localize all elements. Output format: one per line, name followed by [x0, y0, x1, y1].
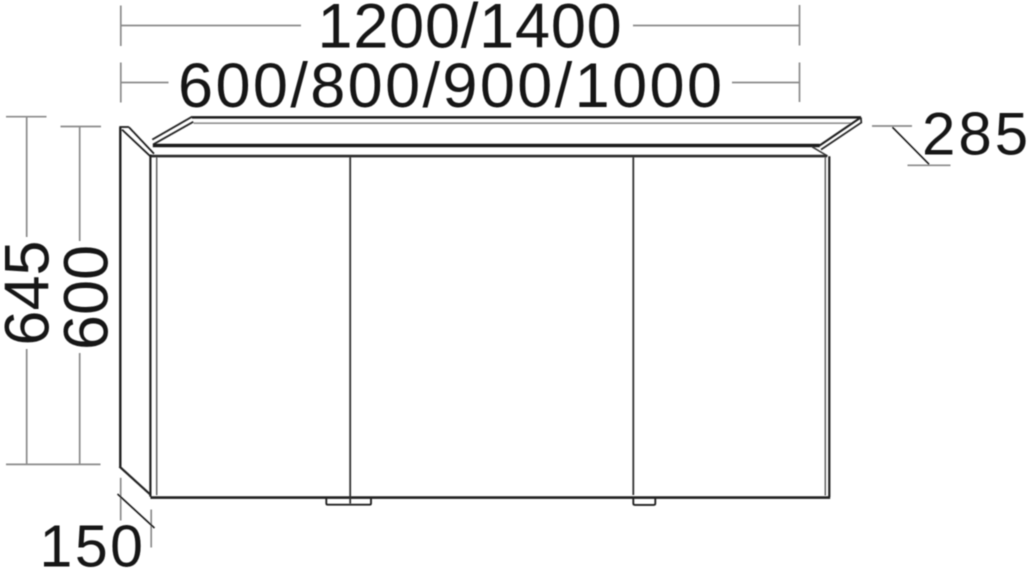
svg-text:285: 285	[922, 101, 1030, 168]
svg-text:600: 600	[52, 245, 122, 350]
svg-text:150: 150	[40, 514, 146, 580]
svg-text:600/800/900/1000: 600/800/900/1000	[178, 51, 724, 121]
